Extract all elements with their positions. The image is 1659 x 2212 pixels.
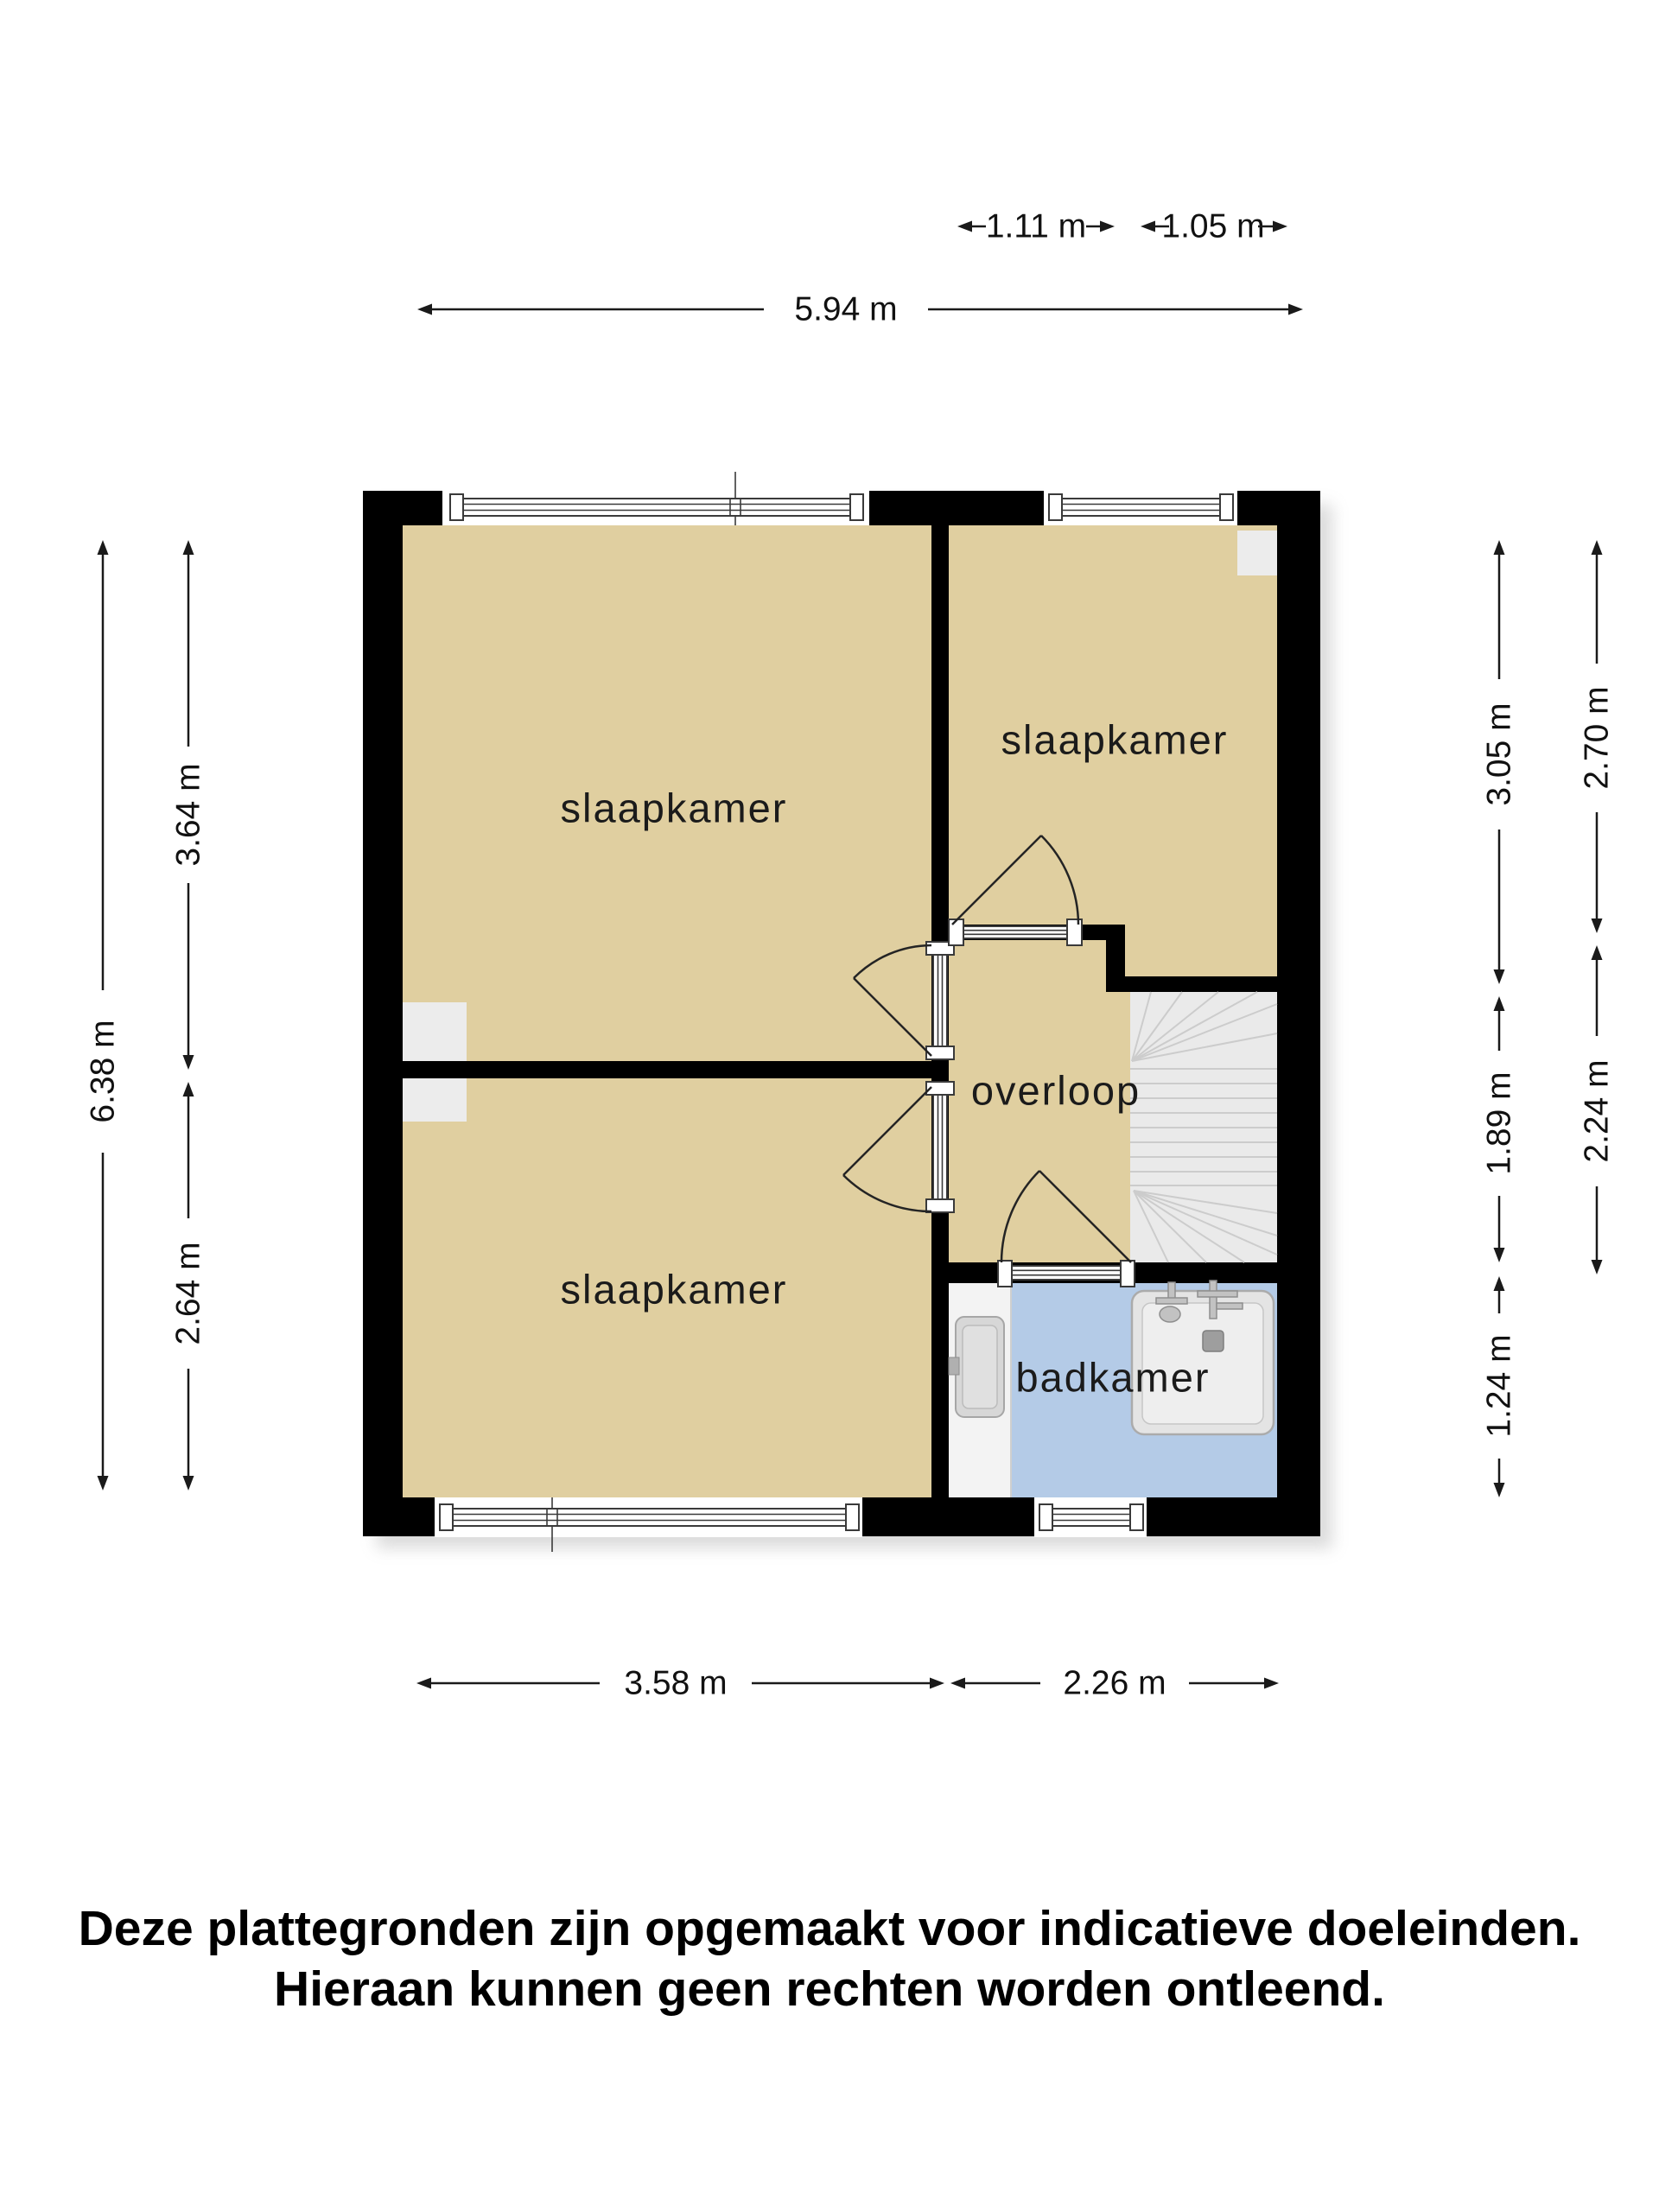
- svg-text:1.89 m: 1.89 m: [1481, 1071, 1518, 1174]
- svg-text:3.64 m: 3.64 m: [170, 763, 207, 866]
- room-label-slaapkamer-top-left: slaapkamer: [561, 785, 788, 831]
- disclaimer-line-2: Hieraan kunnen geen rechten worden ontle…: [274, 1961, 1385, 2017]
- chimney-block-lower: [403, 1078, 467, 1122]
- svg-text:6.38 m: 6.38 m: [85, 1020, 122, 1122]
- duct-block-top-right: [1237, 531, 1277, 575]
- bathroom-sink: [949, 1317, 1004, 1417]
- svg-text:1.11 m: 1.11 m: [986, 208, 1086, 245]
- svg-text:3.58 m: 3.58 m: [624, 1665, 727, 1702]
- room-label-overloop: overloop: [971, 1068, 1141, 1114]
- svg-text:2.64 m: 2.64 m: [170, 1242, 207, 1344]
- window-top-right: [1044, 486, 1237, 525]
- svg-text:1.24 m: 1.24 m: [1481, 1334, 1518, 1437]
- svg-text:5.94 m: 5.94 m: [794, 291, 897, 328]
- floorplan-plan: slaapkamer slaapkamer slaapkamer overloo…: [363, 472, 1320, 1552]
- svg-text:2.26 m: 2.26 m: [1063, 1665, 1166, 1702]
- svg-text:1.05 m: 1.05 m: [1161, 208, 1264, 245]
- sink-faucet-icon: [949, 1357, 959, 1375]
- floorplan-canvas: slaapkamer slaapkamer slaapkamer overloo…: [0, 0, 1659, 2212]
- disclaimer-line-1: Deze plattegronden zijn opgemaakt voor i…: [79, 1901, 1581, 1956]
- svg-text:2.24 m: 2.24 m: [1579, 1059, 1616, 1162]
- svg-text:3.05 m: 3.05 m: [1481, 702, 1518, 805]
- svg-text:2.70 m: 2.70 m: [1579, 686, 1616, 789]
- chimney-block-upper: [403, 1002, 467, 1061]
- window-bottom-bathroom: [1034, 1497, 1147, 1537]
- room-label-slaapkamer-top-right: slaapkamer: [1001, 717, 1229, 763]
- room-label-slaapkamer-bottom-left: slaapkamer: [561, 1267, 788, 1313]
- room-label-badkamer: badkamer: [1016, 1355, 1211, 1401]
